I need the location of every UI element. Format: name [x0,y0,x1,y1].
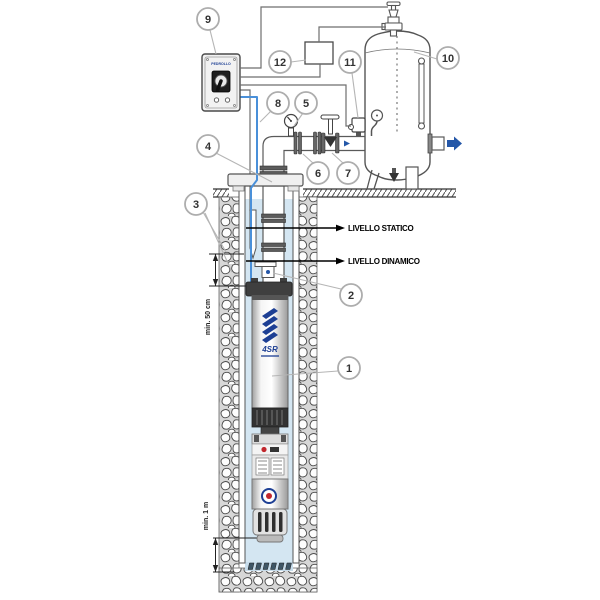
svg-text:8: 8 [275,98,281,110]
svg-text:1: 1 [346,363,352,375]
min-bottom-clearance-label: min. 1 m [203,502,210,530]
installation-diagram: LIVELLO STATICO LIVELLO DINAMICO min. 50… [0,0,600,600]
callout-5: 5 [295,92,317,114]
svg-text:4: 4 [205,141,212,153]
panel-indicator-light [225,98,229,102]
diagram-canvas: LIVELLO STATICO LIVELLO DINAMICO min. 50… [0,0,600,600]
control-panel: PEDROLLO [202,54,240,111]
right-arrow-icon [336,225,345,232]
motor-red-dot [261,447,266,452]
callout-11: 11 [339,51,361,73]
flow-arrow-icon [447,137,462,151]
pressure-tank [365,2,430,189]
svg-text:6: 6 [315,168,321,180]
callout-9: 9 [197,8,219,30]
min-submersion-label: min. 50 cm [205,299,212,335]
svg-text:2: 2 [348,290,354,302]
callout-8: 8 [267,92,289,114]
callout-12: 12 [269,51,291,73]
callout-6: 6 [307,162,329,184]
tank-level-gauge [419,58,425,129]
well-floor [245,562,293,571]
svg-text:11: 11 [344,57,356,69]
callout-2: 2 [340,284,362,306]
dynamic-level-label: LIVELLO DINAMICO [348,257,420,266]
svg-text:7: 7 [345,168,351,180]
callout-7: 7 [337,162,359,184]
callout-1: 1 [338,357,360,379]
tank-outlet [428,134,462,153]
panel-brand-label: PEDROLLO [211,62,231,66]
junction-box [305,42,333,64]
tank-leg-right [406,167,418,189]
pressure-switch [349,118,366,136]
valve-handwheel [321,115,339,119]
panel-indicator-light [214,98,218,102]
svg-text:9: 9 [205,14,211,26]
svg-text:3: 3 [193,199,199,211]
callout-3: 3 [185,193,207,215]
submersible-pump: 4SR [246,278,292,542]
static-level-label: LIVELLO STATICO [348,224,413,233]
callout-10: 10 [437,47,459,69]
callout-4: 4 [197,135,219,157]
svg-text:12: 12 [274,57,286,69]
pump-model-label: 4SR [261,345,278,354]
svg-text:10: 10 [442,53,454,65]
svg-text:5: 5 [303,98,309,110]
right-arrow-icon [336,258,345,265]
